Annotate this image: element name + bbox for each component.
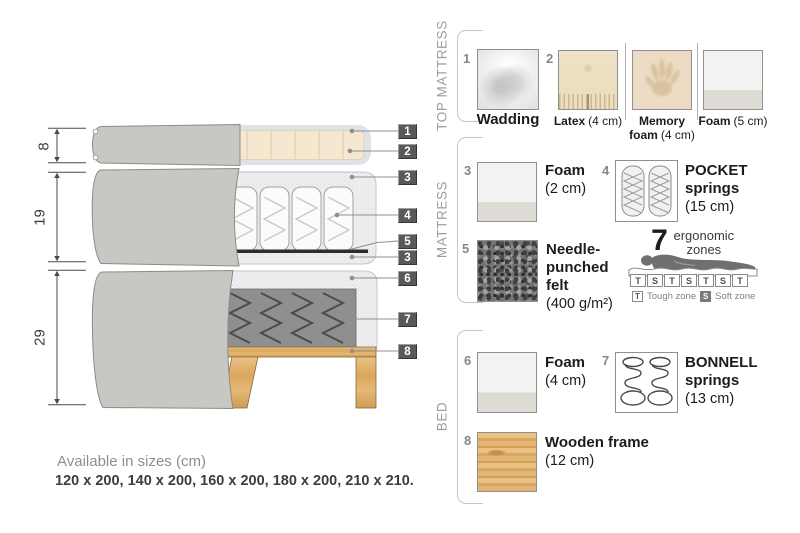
wadding-swatch-icon: [477, 49, 539, 110]
bonnell-springs-layer: [224, 289, 356, 347]
needle-felt-swatch-icon: [477, 240, 538, 302]
callout-badge-5: 5: [398, 234, 417, 249]
callout-badge-3: 3: [398, 170, 417, 185]
foam-5-label: Foam(5 cm): [693, 115, 773, 129]
bonnell-springs-label: BONNELL springs (13 cm): [685, 354, 767, 408]
foam-swatch-icon: [477, 162, 537, 222]
callout-badge-6: 6: [398, 271, 417, 286]
option-divider: [697, 43, 698, 120]
legend-num-foam-2: 3: [464, 163, 471, 178]
section-title-top-mattress: TOP MATTRESS: [435, 16, 450, 136]
tough-zone-key: T: [632, 291, 643, 302]
callout-badge-2: 2: [398, 144, 417, 159]
mattress-construction-infographic: 8 19 29 1 2 3 4 5 3 6 7 8 Available in s…: [0, 0, 800, 533]
dimension-label-top-mattress: 8: [36, 135, 53, 159]
dimension-label-mattress: 19: [32, 204, 49, 232]
wooden-frame-leg: [356, 357, 376, 408]
dimension-label-bed: 29: [32, 324, 49, 352]
top-mattress-cover: [92, 125, 240, 166]
section-title-mattress: MATTRESS: [435, 160, 450, 280]
option-divider: [625, 43, 626, 120]
soft-zone-key: S: [700, 291, 711, 302]
available-sizes-title: Available in sizes (cm): [57, 453, 206, 470]
cover-button: [93, 129, 98, 134]
latex-swatch-icon: [558, 50, 618, 110]
zone-cell: S: [647, 274, 663, 287]
tough-zone-label: Tough zone: [647, 291, 696, 302]
callout-badge-8: 8: [398, 344, 417, 359]
latex-label: Latex(4 cm): [545, 115, 631, 129]
cover-button: [93, 155, 98, 160]
foam-swatch-icon: [477, 352, 537, 413]
bonnell-springs-icon: [616, 353, 677, 412]
soft-zone-label: Soft zone: [715, 291, 755, 302]
legend-num-pocket: 4: [602, 163, 609, 178]
zone-legend: T Tough zone S Soft zone: [632, 291, 755, 302]
callout-badge-4: 4: [398, 208, 417, 223]
mattress-section: [92, 169, 376, 267]
callout-badge-1: 1: [398, 124, 417, 139]
memory-foam-label: Memory foam(4 cm): [625, 115, 699, 142]
zone-cell: T: [732, 274, 748, 287]
zone-cell: T: [630, 274, 646, 287]
pocket-springs-swatch-icon: [615, 160, 678, 222]
memory-foam-swatch-icon: [632, 50, 692, 110]
pocket-springs-icon: [616, 161, 677, 221]
needle-felt-label: Needle-punched felt (400 g/m²): [546, 241, 622, 313]
section-title-bed: BED: [435, 377, 450, 457]
zone-cell: T: [664, 274, 680, 287]
wooden-frame-label: Wooden frame (12 cm): [545, 434, 695, 470]
wooden-frame-swatch-icon: [477, 432, 537, 492]
needle-felt-layer: [220, 250, 368, 254]
foam-swatch-icon: [703, 50, 763, 110]
wadding-label: Wadding: [465, 113, 551, 127]
legend-num-latex: 2: [546, 51, 553, 66]
zone-strip: T S T S T S T: [630, 274, 748, 287]
zone-cell: T: [698, 274, 714, 287]
bed-base-cover: [92, 271, 233, 409]
callout-badge-3b: 3: [398, 250, 417, 265]
dimension-lines: [48, 128, 86, 404]
available-sizes-values: 120 x 200, 140 x 200, 160 x 200, 180 x 2…: [55, 473, 414, 489]
top-mattress-section: [92, 125, 371, 166]
legend-num-bonnell: 7: [602, 353, 609, 368]
mattress-cover: [92, 169, 239, 267]
legend-num-wood: 8: [464, 433, 471, 448]
pocket-springs-label: POCKET springs (15 cm): [685, 162, 767, 216]
zone-cell: S: [681, 274, 697, 287]
zone-cell: S: [715, 274, 731, 287]
callout-badge-7: 7: [398, 312, 417, 327]
legend-num-wadding: 1: [463, 51, 470, 66]
hand-imprint-icon: [633, 51, 691, 109]
bed-section: [92, 271, 377, 409]
legend-num-felt: 5: [462, 241, 469, 256]
bonnell-springs-swatch-icon: [615, 352, 678, 413]
legend-num-foam-4: 6: [464, 353, 471, 368]
